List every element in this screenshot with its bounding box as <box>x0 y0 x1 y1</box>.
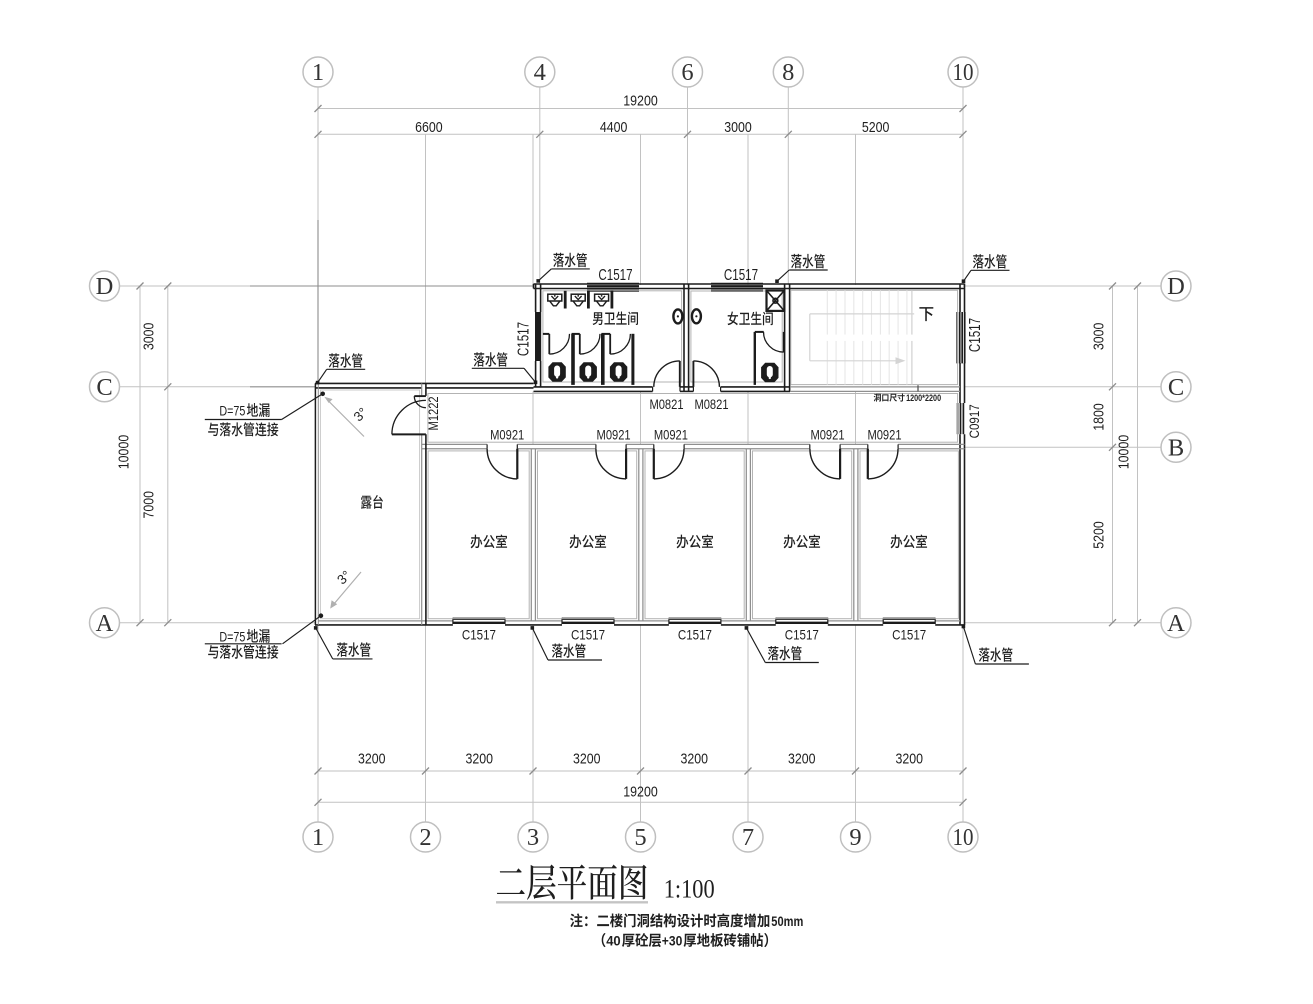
svg-text:4400: 4400 <box>600 119 628 136</box>
svg-text:D=75: D=75 <box>219 629 245 645</box>
svg-text:10: 10 <box>953 824 974 851</box>
svg-text:M0921: M0921 <box>867 428 901 443</box>
svg-text:C1517: C1517 <box>785 627 819 642</box>
svg-text:7000: 7000 <box>141 491 158 519</box>
svg-text:C1517: C1517 <box>462 627 496 642</box>
svg-text:C1517: C1517 <box>678 627 712 642</box>
svg-text:+30: +30 <box>662 933 683 949</box>
svg-text:5: 5 <box>634 824 646 851</box>
svg-text:6: 6 <box>681 59 693 86</box>
svg-text:3200: 3200 <box>896 751 924 768</box>
svg-text:10: 10 <box>953 59 974 86</box>
svg-text:3: 3 <box>527 824 539 851</box>
svg-text:M0921: M0921 <box>597 428 631 443</box>
svg-text:C1517: C1517 <box>967 318 984 352</box>
svg-text:D: D <box>1167 273 1185 300</box>
svg-text:M1222: M1222 <box>426 396 441 430</box>
svg-text:3000: 3000 <box>724 119 752 136</box>
svg-text:M0921: M0921 <box>654 428 688 443</box>
svg-text:B: B <box>1168 435 1184 462</box>
svg-text:40: 40 <box>606 933 621 949</box>
svg-text:10000: 10000 <box>1116 435 1133 470</box>
svg-text:1: 1 <box>312 824 324 851</box>
svg-text:7: 7 <box>742 824 754 851</box>
svg-text:50mm: 50mm <box>771 913 803 929</box>
svg-text:19200: 19200 <box>623 92 658 109</box>
svg-text:C1517: C1517 <box>571 627 605 642</box>
svg-text:D=75: D=75 <box>219 403 245 419</box>
svg-text:8: 8 <box>782 59 794 86</box>
svg-text:1800: 1800 <box>1091 403 1108 431</box>
svg-text:A: A <box>96 610 114 637</box>
svg-text:C1517: C1517 <box>598 267 632 284</box>
svg-text:3200: 3200 <box>788 751 816 768</box>
svg-text:6600: 6600 <box>415 119 443 136</box>
svg-text:4: 4 <box>534 59 546 86</box>
svg-text:5200: 5200 <box>1091 521 1108 549</box>
svg-text:3200: 3200 <box>358 751 386 768</box>
svg-text:1:100: 1:100 <box>664 875 715 904</box>
svg-text:19200: 19200 <box>623 783 658 800</box>
svg-text:1200*2200: 1200*2200 <box>906 393 941 403</box>
svg-text:1: 1 <box>312 59 324 86</box>
svg-text:C1517: C1517 <box>724 267 758 284</box>
svg-text:C0917: C0917 <box>967 404 982 438</box>
svg-text:3200: 3200 <box>681 751 709 768</box>
svg-text:3200: 3200 <box>466 751 494 768</box>
svg-text:3200: 3200 <box>573 751 601 768</box>
svg-text:C: C <box>96 374 112 401</box>
svg-text:D: D <box>96 273 114 300</box>
svg-text:A: A <box>1167 610 1185 637</box>
svg-text:10000: 10000 <box>116 435 133 470</box>
svg-text:M0821: M0821 <box>694 397 728 412</box>
svg-text:5200: 5200 <box>862 119 890 136</box>
svg-text:C1517: C1517 <box>516 322 533 356</box>
svg-text:C: C <box>1168 374 1184 401</box>
svg-text:2: 2 <box>419 824 431 851</box>
svg-text:3000: 3000 <box>1091 323 1108 351</box>
svg-text:M0821: M0821 <box>649 397 683 412</box>
svg-text:M0921: M0921 <box>490 428 524 443</box>
svg-text:M0921: M0921 <box>810 428 844 443</box>
svg-text:9: 9 <box>849 824 861 851</box>
svg-text:3000: 3000 <box>141 323 158 351</box>
svg-text:C1517: C1517 <box>892 627 926 642</box>
